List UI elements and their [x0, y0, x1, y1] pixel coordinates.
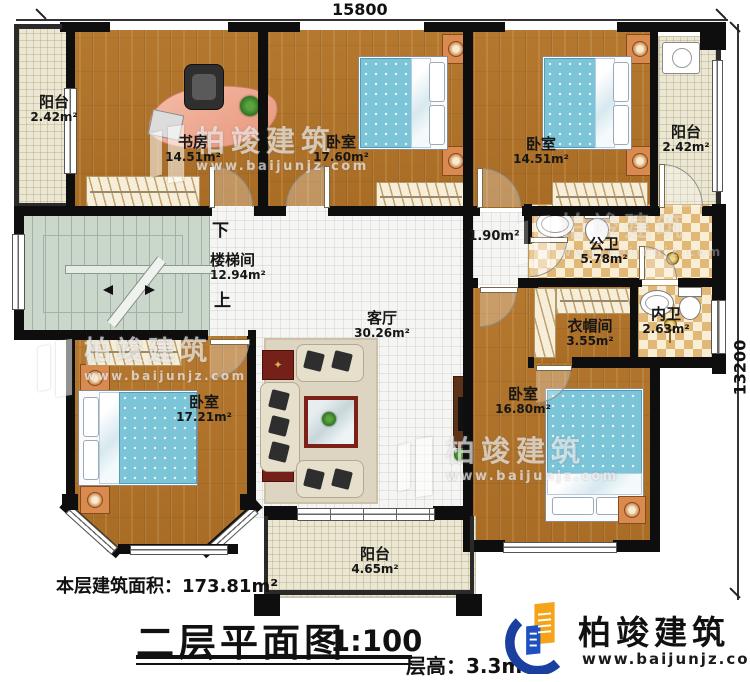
pillow	[613, 62, 629, 102]
company-logo-brand: 柏竣建筑	[578, 606, 730, 654]
wall-post	[700, 22, 726, 50]
pillow	[83, 397, 99, 437]
label-corridor-area: 1.90m²	[458, 230, 530, 245]
watermark-brand: 柏竣建筑	[446, 436, 619, 466]
wall	[258, 30, 268, 206]
watermark-logo-icon	[398, 443, 410, 492]
wall-post	[456, 594, 482, 616]
wall	[14, 206, 212, 216]
window	[12, 234, 25, 310]
title-underline	[136, 663, 412, 665]
washer-drum	[672, 48, 692, 68]
sofa-cushion	[331, 468, 353, 490]
wall	[433, 506, 473, 520]
window	[503, 542, 617, 553]
stair-arrow-left	[103, 285, 113, 295]
sofa	[260, 382, 300, 472]
label-study: 书房14.51m²	[156, 134, 230, 164]
table-ornament-icon: ✦	[273, 360, 282, 371]
watermark-logo-icon	[534, 215, 550, 269]
dimension-top: 15800	[332, 0, 388, 19]
label-stairwell: 楼梯间12.94m²	[210, 252, 290, 282]
sofa-cushion	[268, 441, 290, 463]
label-bedroom-bottom-right: 卧室16.80m²	[484, 386, 562, 416]
watermark-logo-icon	[38, 345, 50, 392]
label-bedroom-top: 卧室17.60m²	[304, 134, 378, 164]
label-stair-up: 上	[214, 292, 244, 311]
wall-post	[62, 494, 78, 510]
lamp-icon	[448, 153, 464, 169]
lamp-icon	[632, 153, 648, 169]
door-leaf	[536, 365, 572, 371]
company-logo-icon	[502, 598, 574, 674]
wall	[14, 208, 24, 234]
dimension-line-right	[737, 24, 739, 600]
pillow	[552, 497, 594, 515]
wall	[463, 216, 473, 278]
balcony-wall	[470, 516, 474, 594]
dimension-tick	[729, 587, 740, 598]
dimension-right: 13200	[730, 340, 749, 396]
sofa-cushion	[268, 415, 290, 437]
wall	[678, 278, 726, 287]
label-bedroom-bottom-left: 卧室17.21m²	[164, 394, 244, 424]
label-balcony-right: 阳台2.42m²	[650, 124, 722, 154]
floor-area-text: 本层建筑面积：173.81m²	[56, 572, 278, 598]
dimension-tick	[715, 8, 726, 19]
chair-seat	[192, 74, 216, 100]
sofa	[296, 460, 364, 498]
wall	[463, 30, 473, 216]
lamp-icon	[448, 41, 464, 57]
door-leaf	[477, 168, 483, 208]
stair-arrow-right	[145, 285, 155, 295]
label-living: 客厅30.26m²	[344, 310, 420, 340]
wall	[650, 30, 658, 208]
dimension-tick	[35, 8, 46, 19]
lamp-icon	[624, 502, 640, 518]
label-balcony-bottom: 阳台4.65m²	[335, 546, 415, 576]
office-chair	[184, 64, 224, 110]
pillow	[429, 62, 445, 102]
bed-sheet	[595, 58, 615, 148]
sofa-cushion	[303, 468, 325, 490]
wall	[254, 206, 286, 216]
wall	[328, 206, 480, 216]
bay-window	[130, 545, 228, 555]
wall	[264, 506, 297, 520]
door-leaf	[659, 164, 665, 208]
watermark-logo-icon	[416, 437, 432, 497]
floor-plan: ✦ ✦	[0, 0, 750, 682]
door-leaf	[480, 287, 518, 293]
window	[711, 300, 726, 354]
room-stairwell	[18, 212, 210, 338]
watermark: 柏竣建筑 www.baijunjz.com	[398, 436, 619, 484]
pillow	[429, 105, 445, 145]
watermark-brand: 柏竣建筑	[84, 338, 247, 366]
lamp-icon	[87, 492, 103, 508]
wall	[66, 172, 75, 208]
stair-landing-outline	[43, 235, 183, 313]
label-balcony-top-left: 阳台2.42m²	[18, 94, 90, 124]
label-ensuite: 内卫2.63m²	[630, 306, 702, 336]
watermark: 柏竣建筑 www.baijunjz.com	[38, 338, 247, 383]
table-plant	[322, 412, 336, 426]
wall	[572, 357, 726, 368]
coffee-table	[304, 396, 358, 448]
watermark-logo-icon	[56, 339, 72, 397]
title-underline	[136, 655, 412, 659]
sliding-door	[297, 508, 435, 521]
washing-machine	[662, 42, 700, 74]
wall-post	[240, 494, 256, 510]
sofa-cushion	[303, 350, 325, 372]
pillow	[83, 440, 99, 480]
balcony-wall	[14, 24, 62, 29]
wardrobe	[556, 288, 632, 314]
wall	[463, 278, 478, 288]
balcony-wall	[264, 590, 474, 595]
wall	[613, 540, 660, 552]
label-cloakroom: 衣帽间3.55m²	[548, 318, 632, 348]
watermark-url: www.baijunjz.com	[84, 369, 247, 383]
end-table: ✦	[262, 350, 294, 380]
lamp-icon	[632, 41, 648, 57]
sofa	[296, 344, 364, 382]
company-logo-url: www.baijunjz.com	[582, 650, 750, 668]
label-public-bath: 公卫5.78m²	[568, 236, 640, 266]
wall	[528, 357, 534, 368]
wall	[524, 278, 642, 287]
nightstand	[80, 486, 110, 514]
label-bedroom-top-right: 卧室14.51m²	[504, 136, 578, 166]
wall	[650, 363, 660, 552]
stair-handrail	[65, 265, 215, 274]
wall	[66, 30, 75, 88]
bed-sheet	[411, 58, 431, 148]
sofa-cushion	[268, 389, 290, 411]
bed-sheet	[99, 392, 121, 484]
label-stair-down: 下	[212, 222, 242, 241]
dimension-tick	[729, 21, 740, 32]
sofa-cushion	[331, 350, 353, 372]
plant	[240, 96, 260, 116]
wall	[518, 278, 538, 288]
wall	[247, 336, 256, 505]
nightstand	[618, 496, 646, 524]
watermark-url: www.baijunjz.com	[446, 469, 619, 484]
pillow	[613, 105, 629, 145]
dimension-line-top	[16, 19, 728, 21]
